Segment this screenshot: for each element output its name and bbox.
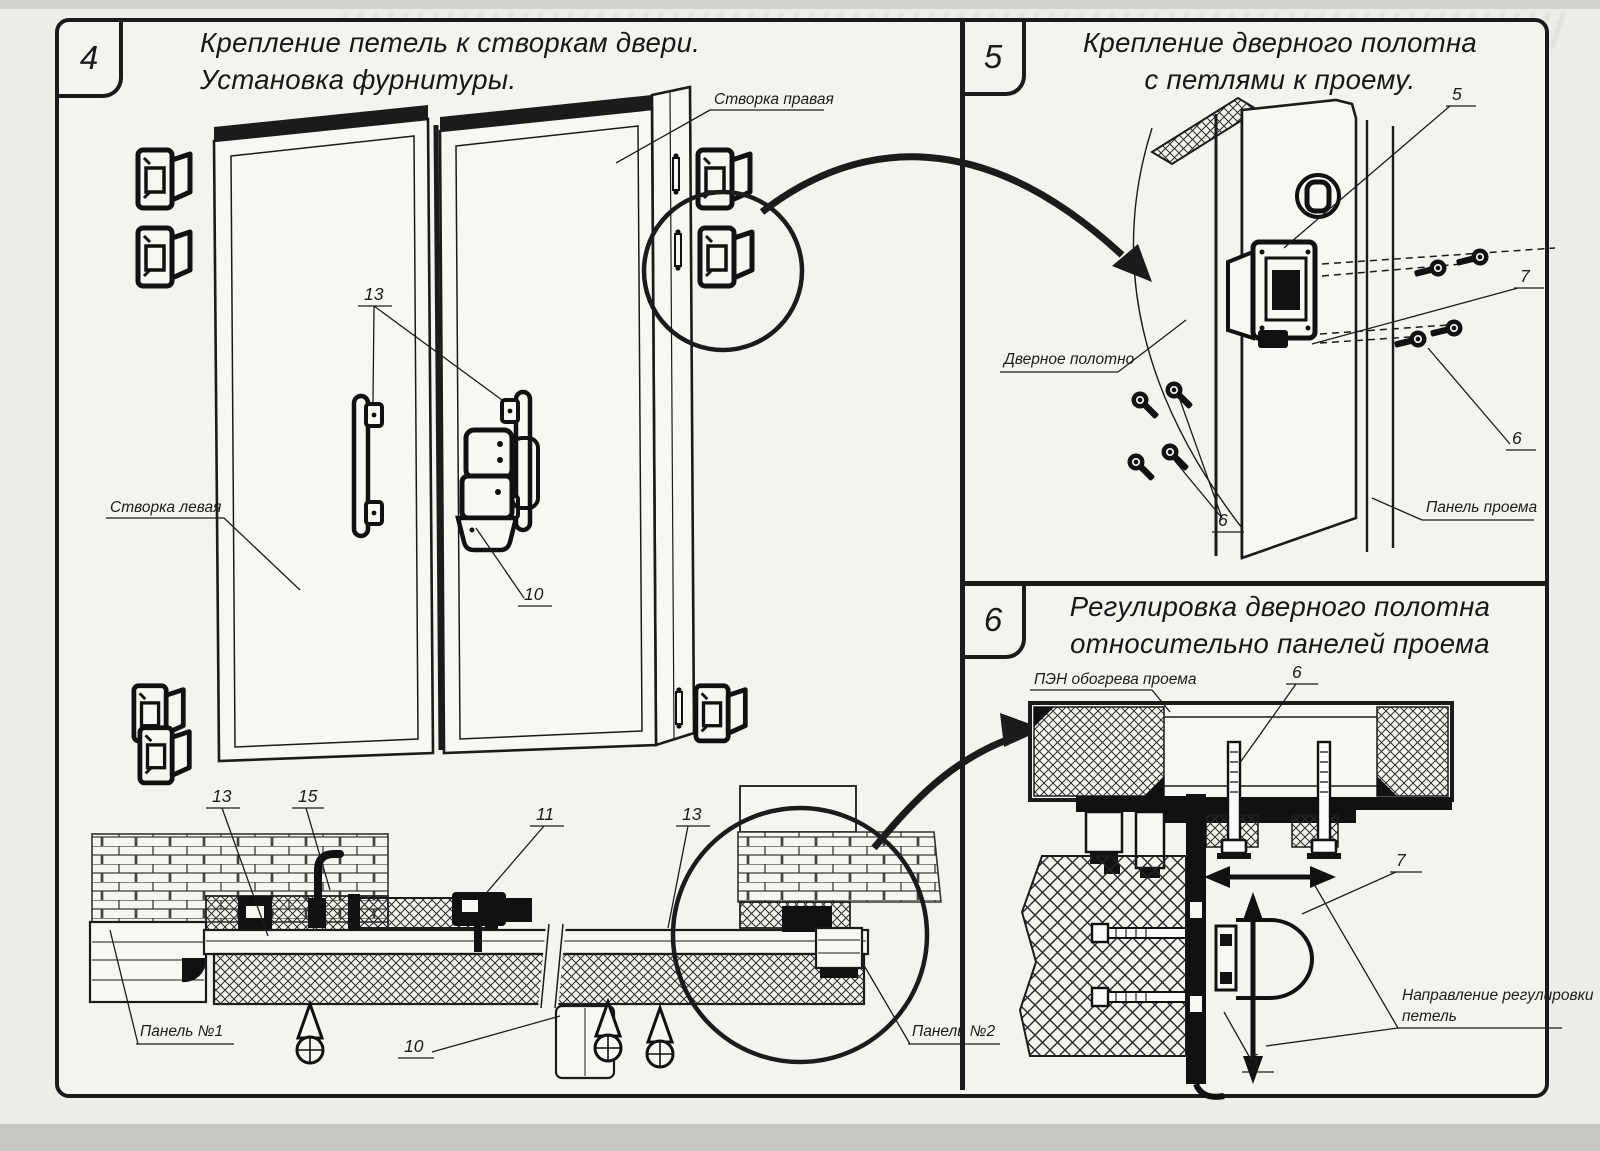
label-7: 7 <box>1396 850 1407 870</box>
screw-icon <box>1393 329 1429 353</box>
panel4-cross-section-drawing: 13 15 11 10 13 Панель №1 Панель №2 <box>90 713 1044 1078</box>
panel5-title-line1: Крепление дверного полотна <box>1030 24 1530 61</box>
panel5-title: Крепление дверного полотна с петлями к п… <box>1030 24 1530 98</box>
hinge-icon <box>138 228 190 286</box>
screw-icon <box>1455 247 1491 271</box>
scanned-assembly-drawing-page: { "frame": { "panel4": {"number": "4", "… <box>0 0 1600 1151</box>
left-door-leaf <box>214 119 433 761</box>
panel6-title: Регулировка дверного полотна относительн… <box>1030 588 1530 662</box>
label-13-left: 13 <box>212 786 232 806</box>
label-10-lock: 10 <box>524 584 544 604</box>
label-6-left: 6 <box>1218 510 1228 530</box>
technical-drawing-layer: Створка правая Створка левая 13 10 <box>0 0 1600 1151</box>
panel4-number-box: 4 <box>59 22 123 98</box>
bracket-base <box>308 898 326 928</box>
label-5: 5 <box>1248 1050 1258 1070</box>
insulation-right <box>1377 707 1448 796</box>
panel6-title-line2: относительно панелей проема <box>1030 625 1530 662</box>
label-panel2: Панель №2 <box>912 1023 995 1040</box>
label-door-leaf: Дверное полотно <box>1002 351 1135 368</box>
mounting-bar-thin <box>1356 797 1452 810</box>
brick-wall-right <box>738 832 941 902</box>
door-body-section <box>214 954 864 1004</box>
panel6-adjustment-drawing: 6 7 5 ПЭН обогрева проема Направление ре… <box>1020 662 1594 1097</box>
label-13-right: 13 <box>682 804 702 824</box>
detail-arrow-to-panel5 <box>762 157 1122 255</box>
door-edge-bar <box>1186 794 1206 1084</box>
screw-icon <box>1124 450 1159 485</box>
label-opening-panel: Панель проема <box>1426 499 1538 516</box>
screw-icon <box>1429 318 1465 342</box>
label-adjust-direction-1: Направление регулировки <box>1402 987 1594 1004</box>
screw-icon <box>1162 378 1197 413</box>
label-10-section: 10 <box>404 1036 424 1056</box>
notch <box>1190 996 1202 1012</box>
hinge-icon <box>700 228 752 286</box>
hinge-icon <box>698 150 750 208</box>
panel5-title-line2: с петлями к проему. <box>1030 61 1530 98</box>
panel4-title: Крепление петель к створкам двери. Устан… <box>200 24 700 98</box>
door-edge-foot <box>1196 1084 1224 1097</box>
door-top-rail-section <box>204 930 868 954</box>
hinge-icon <box>696 686 745 741</box>
panel4-title-line1: Крепление петель к створкам двери. <box>200 24 700 61</box>
label-panel1: Панель №1 <box>140 1023 223 1040</box>
label-leaf-left: Створка левая <box>110 499 221 516</box>
panel6-number-box: 6 <box>964 585 1026 659</box>
label-15: 15 <box>298 786 318 806</box>
label-6: 6 <box>1292 662 1302 682</box>
channel-cap <box>348 894 360 930</box>
label-11: 11 <box>536 804 554 824</box>
screw-icon <box>1128 388 1163 423</box>
notch <box>1190 902 1202 918</box>
peephole <box>1297 175 1339 217</box>
stepped-profile <box>816 928 862 968</box>
label-adjust-direction-2: петель <box>1402 1008 1457 1025</box>
gasket <box>820 968 858 978</box>
panel6-number: 6 <box>984 601 1002 639</box>
panel4-number: 4 <box>80 39 98 77</box>
label-leaf-right: Створка правая <box>714 91 834 108</box>
wall-panel-section <box>1020 856 1186 1056</box>
panel5-number-box: 5 <box>964 22 1026 96</box>
label-7: 7 <box>1520 266 1531 286</box>
insulation-left <box>1034 707 1164 796</box>
label-pen-heater: ПЭН обогрева проема <box>1034 671 1197 688</box>
panel4-title-line2: Установка фурнитуры. <box>200 61 700 98</box>
panel6-title-line1: Регулировка дверного полотна <box>1030 588 1530 625</box>
horizontal-adjust-arrow <box>1204 866 1336 888</box>
panel5-number: 5 <box>984 38 1002 76</box>
screw-icon <box>1413 258 1449 282</box>
hinge-detail <box>1228 242 1315 348</box>
adjustable-foot <box>647 1008 673 1067</box>
hinge-icon <box>138 150 190 208</box>
adjustable-foot <box>297 1004 323 1063</box>
label-13-handles: 13 <box>364 284 384 304</box>
panel4-door-leaves-drawing: Створка правая Створка левая 13 10 <box>106 87 1152 783</box>
hinge-side-view <box>1216 920 1312 998</box>
hinge-icon <box>140 728 189 783</box>
panel5-hinge-mounting-drawing: 5 7 6 6 Дверное полотно Панель проема <box>1000 84 1555 558</box>
label-6-right: 6 <box>1512 428 1522 448</box>
